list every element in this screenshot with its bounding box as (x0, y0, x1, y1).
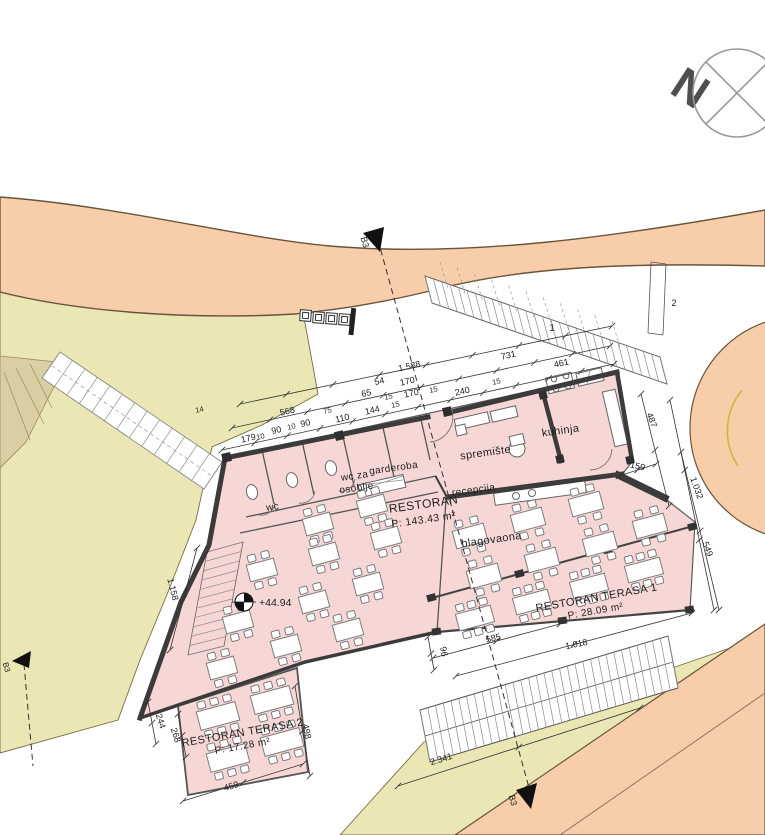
chair (491, 584, 501, 593)
chair (549, 568, 559, 577)
chair (330, 561, 340, 570)
chair (474, 627, 484, 636)
chair (214, 679, 224, 688)
chair (592, 565, 602, 574)
chair (519, 614, 529, 623)
chair (294, 749, 304, 758)
chair (636, 552, 646, 561)
chair (333, 614, 343, 623)
chair (478, 597, 488, 606)
chair (607, 552, 617, 561)
chair (512, 504, 522, 513)
chair (591, 556, 601, 565)
chair (535, 528, 545, 537)
chair (392, 545, 402, 554)
chair (570, 488, 580, 497)
chair (227, 768, 237, 777)
floor-plan-page: 1.58854170651517015240157314611456817910… (0, 0, 765, 835)
chair (278, 657, 288, 666)
dimension-label: 96 (438, 646, 450, 658)
chair (649, 506, 659, 515)
chair (468, 560, 478, 569)
chair (299, 586, 309, 595)
chair (374, 591, 384, 600)
chair (541, 540, 551, 549)
chair (268, 577, 278, 586)
chair (469, 516, 479, 525)
chair (209, 697, 219, 706)
chair (312, 582, 322, 591)
room-label-wc: wc (264, 501, 279, 514)
chair (196, 701, 206, 710)
chair (647, 549, 657, 558)
chair (378, 549, 388, 558)
chair (281, 752, 291, 761)
site-plan-drawing: 1.58854170651517015240157314611456817910… (0, 0, 765, 835)
chair (512, 587, 522, 596)
chair (634, 510, 644, 519)
chair (353, 568, 363, 577)
chair (593, 512, 603, 521)
chair (316, 565, 326, 574)
chair (455, 603, 465, 612)
chair (346, 610, 356, 619)
path-2-label: 2 (671, 298, 676, 308)
chair (599, 524, 609, 533)
chair (306, 613, 316, 622)
chair (366, 564, 376, 573)
chair (260, 550, 270, 559)
chair (244, 629, 254, 638)
chair (247, 554, 257, 563)
chair (371, 522, 381, 531)
chair (485, 624, 495, 633)
chair (254, 581, 264, 590)
chair (220, 648, 230, 657)
chair (271, 630, 281, 639)
elevation-value: +44.94 (259, 597, 292, 609)
chair (223, 606, 233, 615)
chair (475, 588, 485, 597)
chair (214, 772, 224, 781)
stair-ramp-1-label: 1 (549, 323, 555, 334)
chair (268, 756, 278, 765)
fixture (455, 424, 467, 436)
chair (524, 584, 534, 593)
chair (309, 538, 319, 547)
chair (624, 555, 634, 564)
chair (577, 516, 587, 525)
chair (240, 765, 250, 774)
chair (292, 653, 302, 662)
chair (316, 504, 326, 513)
chair (276, 678, 286, 687)
chair (250, 685, 260, 694)
chair (360, 595, 370, 604)
chair (641, 538, 651, 547)
chair (258, 714, 268, 723)
chair (340, 641, 350, 650)
chair (230, 633, 240, 642)
chair (271, 710, 281, 719)
chair (657, 534, 667, 543)
chair (462, 630, 472, 639)
chair (354, 637, 364, 646)
chair (467, 600, 477, 609)
chair (303, 508, 313, 517)
chair (569, 571, 579, 580)
chair (284, 707, 294, 716)
chair (585, 484, 595, 493)
chair (581, 568, 591, 577)
chair (263, 681, 273, 690)
chair (584, 528, 594, 537)
chair (526, 544, 536, 553)
chair (228, 675, 238, 684)
chair (527, 500, 537, 509)
chair (207, 652, 217, 661)
chair (222, 694, 232, 703)
chair (320, 609, 330, 618)
chair (533, 572, 543, 581)
chair (483, 556, 493, 565)
chair (535, 581, 545, 590)
chair (322, 534, 332, 543)
chair (284, 626, 294, 635)
